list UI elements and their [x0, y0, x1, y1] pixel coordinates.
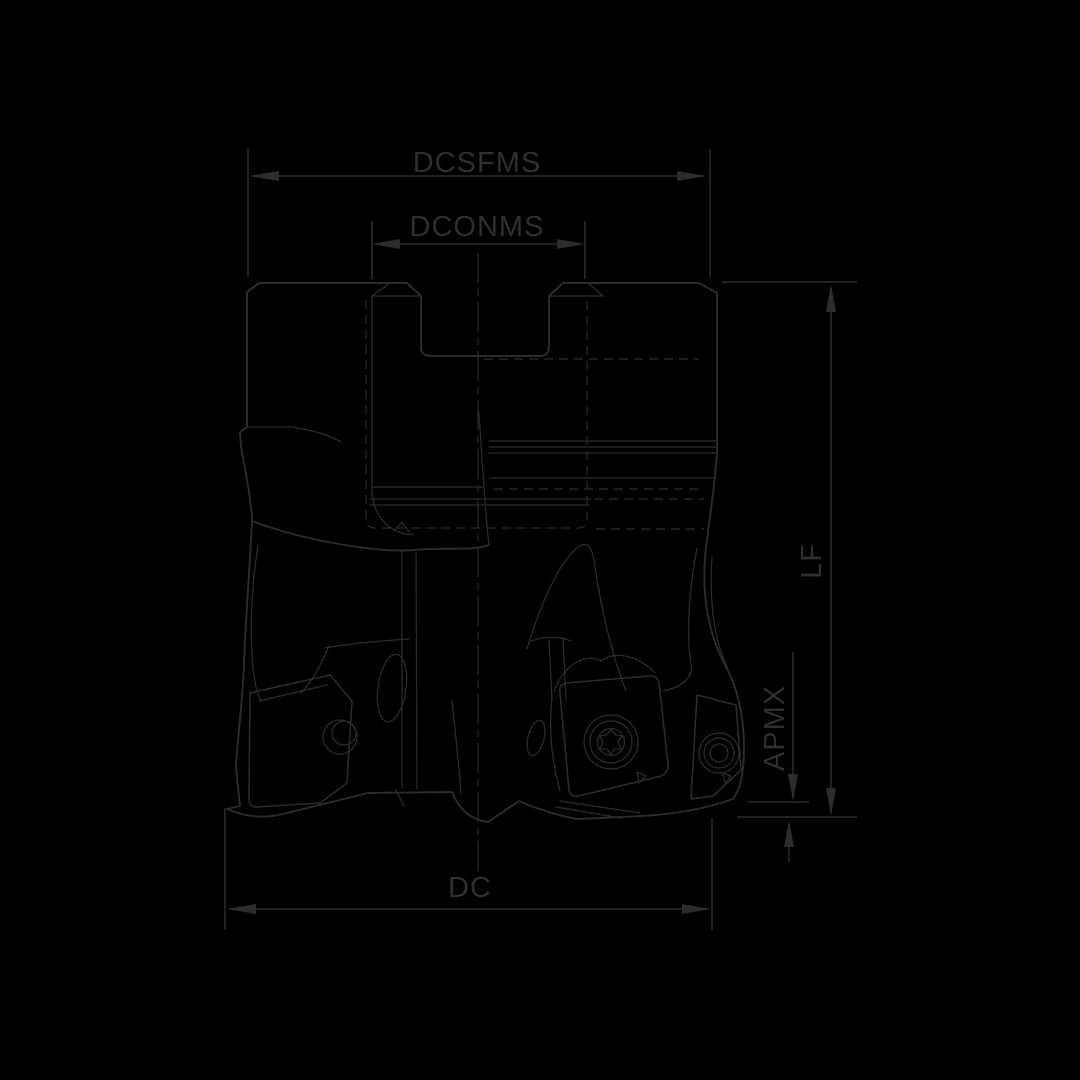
insert-right-corner-mark: [723, 773, 731, 783]
insert-center: [551, 676, 668, 818]
drawing-stage: DCSFMS DCONMS LF APMX: [0, 0, 1080, 1080]
hub-bottom-arc: [372, 490, 413, 534]
apmx-label: APMX: [759, 685, 791, 771]
lf-arrowhead-top: [826, 284, 836, 312]
insert-center-outline: [560, 676, 669, 797]
tall-tooth-post-2: [563, 639, 566, 700]
dc-arrowhead-right: [682, 904, 711, 914]
left-pocket-top-edge: [325, 639, 409, 648]
insert-center-screw-r1: [584, 715, 638, 769]
insert-right-screw-r2: [704, 738, 734, 768]
dimensions-group: DCSFMS DCONMS LF APMX: [225, 147, 857, 930]
technical-drawing-canvas: DCSFMS DCONMS LF APMX: [0, 0, 1080, 1080]
insert-center-screw-r3: [598, 729, 625, 756]
dconms-arrowhead-right: [557, 239, 585, 249]
insert-right-screw-r3: [710, 744, 728, 762]
dconms-label: DCONMS: [410, 211, 545, 243]
insert-center-screw-r2: [590, 721, 632, 763]
insert-right-screw-r1: [699, 733, 739, 773]
insert-left-inner-edge: [259, 685, 327, 701]
body-outline: [236, 283, 744, 806]
hidden-bore: [366, 300, 587, 528]
dc-arrowhead-left: [227, 904, 256, 914]
body-bottom-edge: [227, 792, 733, 822]
insert-right: [691, 695, 741, 799]
insert-right-outline: [691, 695, 741, 799]
torx-socket-center: [600, 730, 622, 755]
dimension-dc: DC: [225, 808, 712, 930]
tall-tooth-inner: [531, 637, 571, 641]
gash-top-edge: [252, 521, 489, 550]
apmx-arrowhead-down: [788, 774, 798, 801]
insert-left-outline: [249, 675, 352, 807]
insert-left-screw-outer: [323, 720, 357, 754]
insert-center-corner-mark: [637, 772, 646, 783]
collar-step-left: [247, 427, 341, 442]
tall-tooth-arch: [527, 544, 626, 691]
dcsfms-arrowhead-right: [677, 171, 707, 181]
right-tooth-crescent-1: [663, 548, 697, 691]
tall-tooth-post-1: [549, 641, 552, 700]
insert-center-pocket-edge: [551, 697, 560, 791]
insert-left: [249, 675, 357, 807]
dcsfms-arrowhead-left: [249, 171, 279, 181]
apmx-arrowhead-up: [784, 820, 794, 847]
cutter-body: [227, 253, 744, 875]
insert-center-bottom-1: [560, 801, 640, 813]
coolant-hole-left: [373, 652, 410, 723]
lf-arrowhead-bottom: [826, 788, 836, 816]
dc-label: DC: [448, 872, 492, 904]
front-tooth-edge-2: [416, 553, 417, 789]
dcsfms-label: DCSFMS: [413, 147, 541, 179]
dimension-apmx: APMX: [748, 652, 809, 862]
left-pocket-wall: [251, 546, 261, 701]
coolant-hole-center: [524, 719, 548, 758]
hub-taper-line: [479, 413, 489, 545]
clamp-wave: [554, 655, 655, 691]
dconms-arrowhead-left: [372, 239, 400, 249]
lf-label: LF: [796, 543, 828, 579]
front-tooth-edge-3: [452, 700, 461, 794]
insert-left-screw-inner: [332, 721, 356, 745]
